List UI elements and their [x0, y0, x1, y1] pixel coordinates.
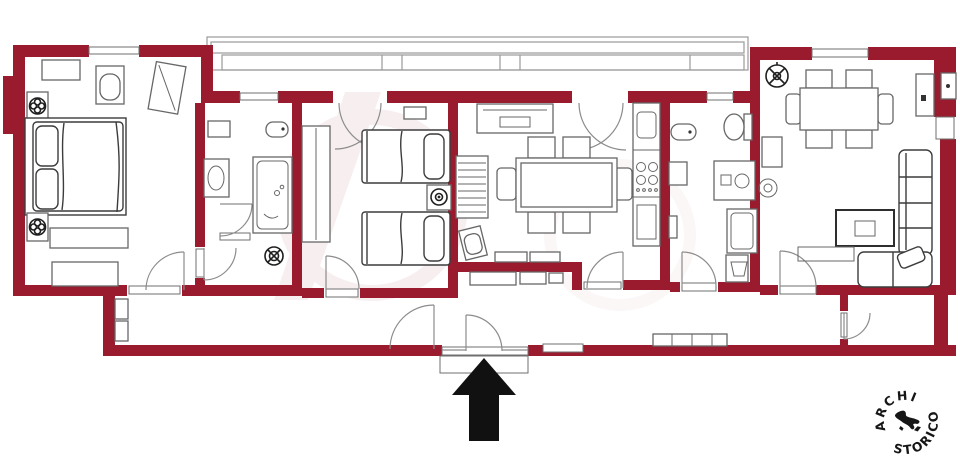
- single-bed: [362, 212, 450, 265]
- kitchen-dining-room: [456, 103, 660, 262]
- dining-table: [497, 137, 632, 233]
- double-bed: [25, 118, 126, 215]
- dining-table: [786, 70, 893, 148]
- shower-tray: [727, 209, 757, 253]
- entrance: [440, 350, 528, 441]
- bathroom-1: [204, 121, 292, 265]
- ceiling-fan-icon: [766, 62, 788, 87]
- sideboard: [477, 104, 553, 133]
- vanity-basin: [714, 161, 755, 200]
- living-room: [759, 62, 956, 287]
- coffee-table: [836, 210, 894, 246]
- armchair: [459, 226, 488, 260]
- floor-plan-canvas: MARCHIO STORICO: [0, 0, 960, 474]
- floor-drain-icon: [265, 247, 283, 265]
- plant: [759, 179, 777, 197]
- shoe-bench: [653, 334, 727, 346]
- wardrobe: [148, 62, 186, 114]
- toilet: [724, 114, 752, 140]
- single-bed: [362, 130, 450, 183]
- washbasin: [204, 159, 229, 197]
- twin-bedroom: [302, 107, 451, 265]
- washing-machine: [726, 255, 748, 282]
- company-seal: MARCHIO STORICO: [858, 374, 954, 470]
- kitchen-counter: [633, 103, 660, 246]
- italy-silhouette-icon: [892, 405, 924, 439]
- shower: [253, 157, 292, 233]
- seal-text-bottom: STORICO: [886, 402, 954, 470]
- balcony-railing: [207, 37, 748, 70]
- seal-text-top: MARCHIO: [860, 375, 930, 445]
- armchair: [96, 66, 124, 104]
- master-bedroom: [25, 60, 186, 286]
- shelf-radiator: [456, 156, 488, 218]
